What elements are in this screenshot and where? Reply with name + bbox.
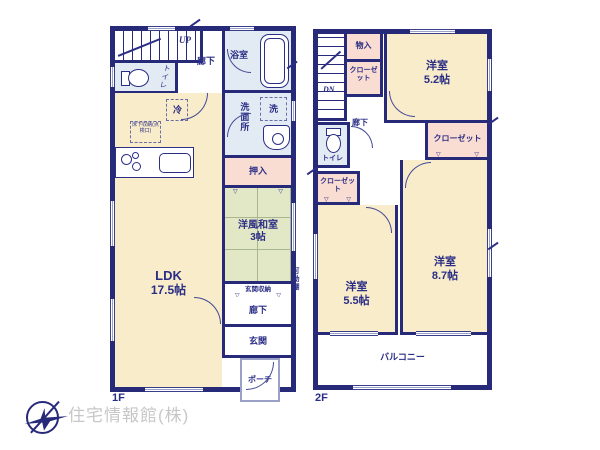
ldk-room: 冷 床下収納(点検口) LDK 17.5帖 <box>115 93 222 387</box>
window <box>487 229 492 277</box>
closet-upper-left-label: クローゼット <box>349 67 378 83</box>
window <box>291 203 296 251</box>
closet-upper-left: クローゼット <box>347 62 383 97</box>
oshiire-closet: 押入 <box>222 158 291 188</box>
toilet-label-2f: トイレ <box>318 155 347 163</box>
floorplan-canvas: UP 廊下 トイレ 浴室 洗 洗面所 押入 <box>0 0 600 450</box>
slider-mark-icon <box>233 189 238 195</box>
hall-door-arc <box>194 297 221 324</box>
washroom: 洗 洗面所 <box>222 93 291 158</box>
window <box>110 67 115 87</box>
bedroom-8-7-size: 8.7帖 <box>403 270 487 283</box>
hallway-bottom: 廊下 <box>222 297 291 327</box>
floor2-caption: 2F <box>315 392 328 405</box>
window <box>145 387 203 392</box>
window <box>110 201 115 246</box>
entrance-door-arc <box>246 362 274 390</box>
washer-label: 洗 <box>269 104 278 114</box>
slider-mark-icon <box>346 197 351 203</box>
stove-burner-icon <box>132 152 139 159</box>
company-name: 住宅情報館(株) <box>68 406 189 426</box>
closet-right: クローゼット <box>425 123 487 160</box>
company-logo <box>24 396 72 438</box>
entrance-storage: 玄関収納 <box>222 284 291 297</box>
ldk-size: 17.5帖 <box>115 284 222 298</box>
balcony-label: バルコニー <box>318 352 487 362</box>
floorplan-2f: DN 物入 クローゼット 洋室 5.2帖 廊下 トイレ クローゼット <box>313 29 492 390</box>
ldk-name: LDK <box>115 269 222 284</box>
bedroom-8-7: 洋室 8.7帖 <box>400 160 487 335</box>
stove-burner-icon <box>121 154 132 165</box>
window <box>487 59 492 91</box>
toilet-room-1f: トイレ <box>115 63 178 94</box>
window <box>416 331 471 336</box>
floor-storage-label: 床下収納(点検口) <box>130 123 161 135</box>
window <box>230 26 254 31</box>
balcony: バルコニー <box>318 335 487 385</box>
bedroom-5-5-door-arc <box>366 207 392 233</box>
bedroom-5-5-size: 5.5帖 <box>318 295 395 308</box>
bedroom-5-2: 洋室 5.2帖 <box>384 34 487 123</box>
floor1-caption: 1F <box>112 392 125 405</box>
bathroom: 浴室 <box>222 31 291 93</box>
bedroom-8-7-name: 洋室 <box>403 256 487 269</box>
porch: ポーチ <box>240 358 280 402</box>
slider-mark-icon <box>324 197 329 203</box>
stairs-dn-label: DN <box>323 85 335 94</box>
slider-mark-icon <box>474 152 479 158</box>
kitchen-sink-icon <box>159 153 191 173</box>
bedroom-5-2-name: 洋室 <box>387 60 487 73</box>
kitchen-counter <box>115 147 194 178</box>
tatami-room-size: 3帖 <box>225 232 291 244</box>
bedroom-5-5: 洋室 5.5帖 <box>318 205 398 335</box>
bedroom-5-2-door-arc <box>389 91 415 117</box>
closet-mid-left-label: クローゼット <box>320 178 355 194</box>
stairs-2f <box>318 34 347 121</box>
stove-burner-icon <box>132 162 141 171</box>
hallway-top-label: 廊下 <box>197 56 215 66</box>
toilet-door-arc <box>351 126 373 148</box>
toilet-bowl-icon <box>326 134 341 153</box>
ldk-door-arc <box>181 93 208 120</box>
entrance-label: 玄関 <box>225 336 291 346</box>
movable-shelf-label: 可動棚 <box>291 267 299 291</box>
window <box>110 299 115 341</box>
toilet-room-2f: トイレ <box>318 122 350 168</box>
window <box>291 101 296 121</box>
washbasin-icon <box>263 125 290 150</box>
tatami-room: 洋風和室 3帖 <box>222 188 291 284</box>
bedroom-5-2-size: 5.2帖 <box>387 74 487 87</box>
window <box>410 29 455 34</box>
storage-label: 物入 <box>347 41 380 50</box>
floorplan-1f: UP 廊下 トイレ 浴室 洗 洗面所 押入 <box>110 26 296 392</box>
closet-right-label: クローゼット <box>428 134 487 143</box>
closet-mid-left: クローゼット <box>318 171 360 205</box>
window <box>148 26 175 31</box>
bath-door-arc <box>227 49 251 73</box>
toilet-label-1f: トイレ <box>158 63 172 90</box>
bedroom-8-7-door-arc <box>405 162 431 188</box>
slider-mark-icon <box>278 189 283 195</box>
oshiire-label: 押入 <box>225 166 291 176</box>
window <box>313 234 318 279</box>
washroom-door-arc <box>227 113 251 137</box>
entrance: 玄関 <box>222 327 291 358</box>
balcony-opening <box>353 385 451 390</box>
storage-monoire: 物入 <box>347 34 383 62</box>
slider-mark-icon <box>436 152 441 158</box>
window <box>330 331 378 336</box>
bedroom-5-5-name: 洋室 <box>318 281 395 294</box>
bathtub-icon <box>260 34 289 88</box>
hallway-bottom-label: 廊下 <box>225 305 291 315</box>
tatami-room-name: 洋風和室 <box>225 220 291 232</box>
stairs-up-label: UP <box>179 35 191 45</box>
toilet-bowl-icon <box>128 69 149 87</box>
